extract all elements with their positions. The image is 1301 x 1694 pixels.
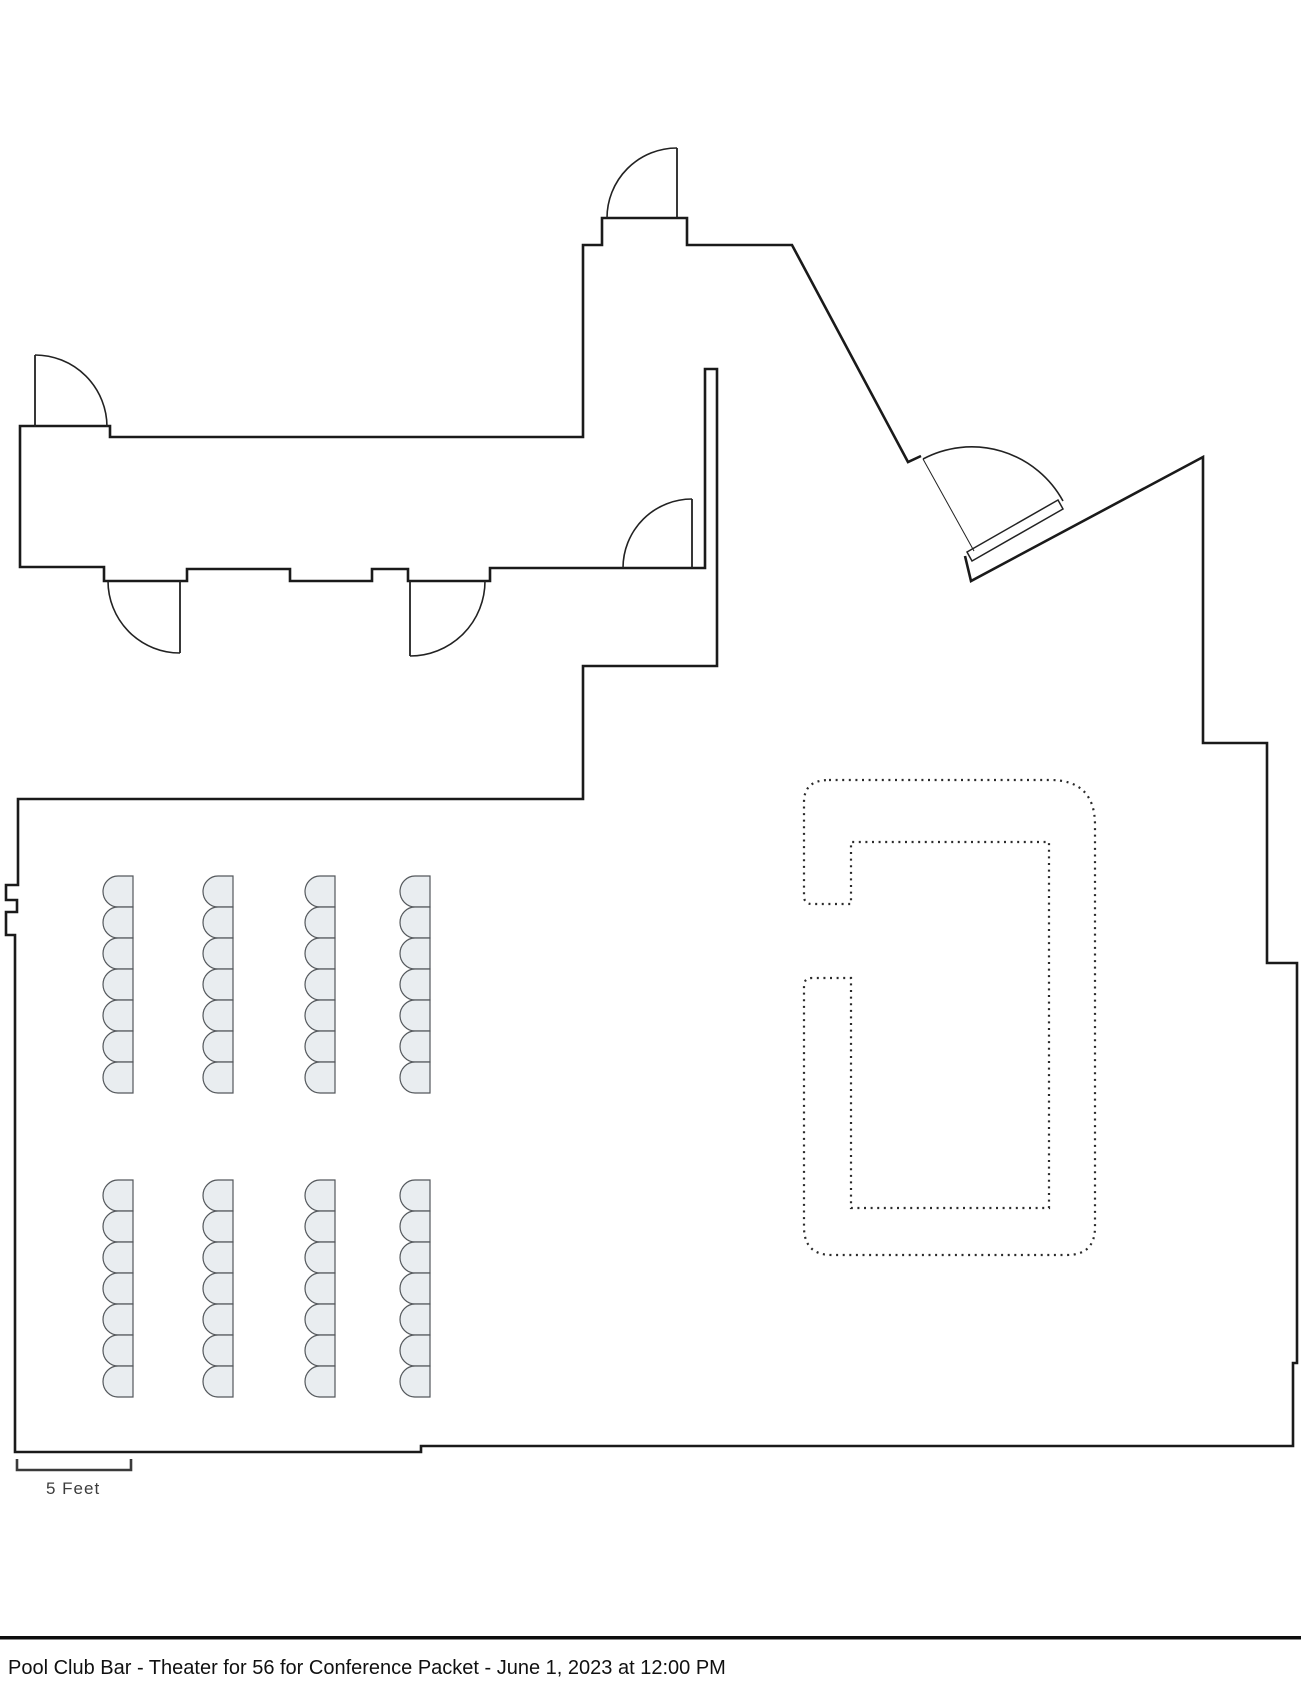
chair [400, 1211, 430, 1242]
chair [305, 1304, 335, 1335]
chair [400, 907, 430, 938]
chair [400, 938, 430, 969]
chair [103, 1304, 133, 1335]
chair [103, 938, 133, 969]
chair [305, 1000, 335, 1031]
chair [103, 1062, 133, 1093]
chair [203, 1180, 233, 1211]
chair [203, 1304, 233, 1335]
chair [305, 1242, 335, 1273]
chair [103, 1273, 133, 1304]
door-1-swing [108, 581, 180, 653]
chair [400, 1031, 430, 1062]
chair [305, 1335, 335, 1366]
chair [305, 876, 335, 907]
door-5-swing [607, 148, 677, 218]
chair [400, 1304, 430, 1335]
door-2-swing [410, 581, 485, 656]
door-6-swing [923, 447, 1063, 501]
footer: Pool Club Bar - Theater for 56 for Confe… [0, 1636, 1301, 1679]
bar-counter-dotted-outline [804, 780, 1095, 1255]
chair [103, 1211, 133, 1242]
chair [305, 907, 335, 938]
chair [203, 1242, 233, 1273]
door-3-swing [623, 499, 692, 568]
chair [400, 1273, 430, 1304]
chair [400, 876, 430, 907]
chair [305, 1031, 335, 1062]
scale-bar-label: 5 Feet [46, 1479, 100, 1498]
chair [203, 938, 233, 969]
chair [305, 938, 335, 969]
chair [203, 876, 233, 907]
wall-outline [6, 218, 1297, 1452]
chair [400, 1000, 430, 1031]
chair [400, 1062, 430, 1093]
chair [103, 1031, 133, 1062]
chair [203, 1000, 233, 1031]
chair [103, 907, 133, 938]
chair [305, 1180, 335, 1211]
chair [203, 1211, 233, 1242]
chair [103, 1180, 133, 1211]
chair [305, 1211, 335, 1242]
floor-plan-svg: 5 Feet Pool Club Bar - Theater for 56 fo… [0, 0, 1301, 1694]
chair [103, 1335, 133, 1366]
chair [305, 1273, 335, 1304]
scale-bar-bracket [17, 1459, 131, 1470]
chair [305, 1366, 335, 1397]
chair [305, 1062, 335, 1093]
chair [400, 1180, 430, 1211]
chair [103, 1242, 133, 1273]
door-6-sill [967, 500, 1063, 561]
floor-plan-page: 5 Feet Pool Club Bar - Theater for 56 fo… [0, 0, 1301, 1694]
chair [203, 969, 233, 1000]
chair [400, 969, 430, 1000]
door-6-leaf [923, 459, 974, 551]
chair [400, 1242, 430, 1273]
chair [203, 1273, 233, 1304]
door-4-swing [35, 355, 107, 427]
chair [103, 876, 133, 907]
chair [103, 969, 133, 1000]
chair [103, 1000, 133, 1031]
chair [305, 969, 335, 1000]
chair [203, 1366, 233, 1397]
chair [203, 1335, 233, 1366]
chair [203, 1062, 233, 1093]
chairs-layer [103, 876, 430, 1397]
scale-bar: 5 Feet [17, 1459, 131, 1498]
footer-divider [0, 1636, 1301, 1640]
chair [400, 1335, 430, 1366]
footer-title: Pool Club Bar - Theater for 56 for Confe… [8, 1657, 726, 1679]
chair [400, 1366, 430, 1397]
doors [35, 148, 1063, 656]
chair [203, 907, 233, 938]
chair [203, 1031, 233, 1062]
chair [103, 1366, 133, 1397]
